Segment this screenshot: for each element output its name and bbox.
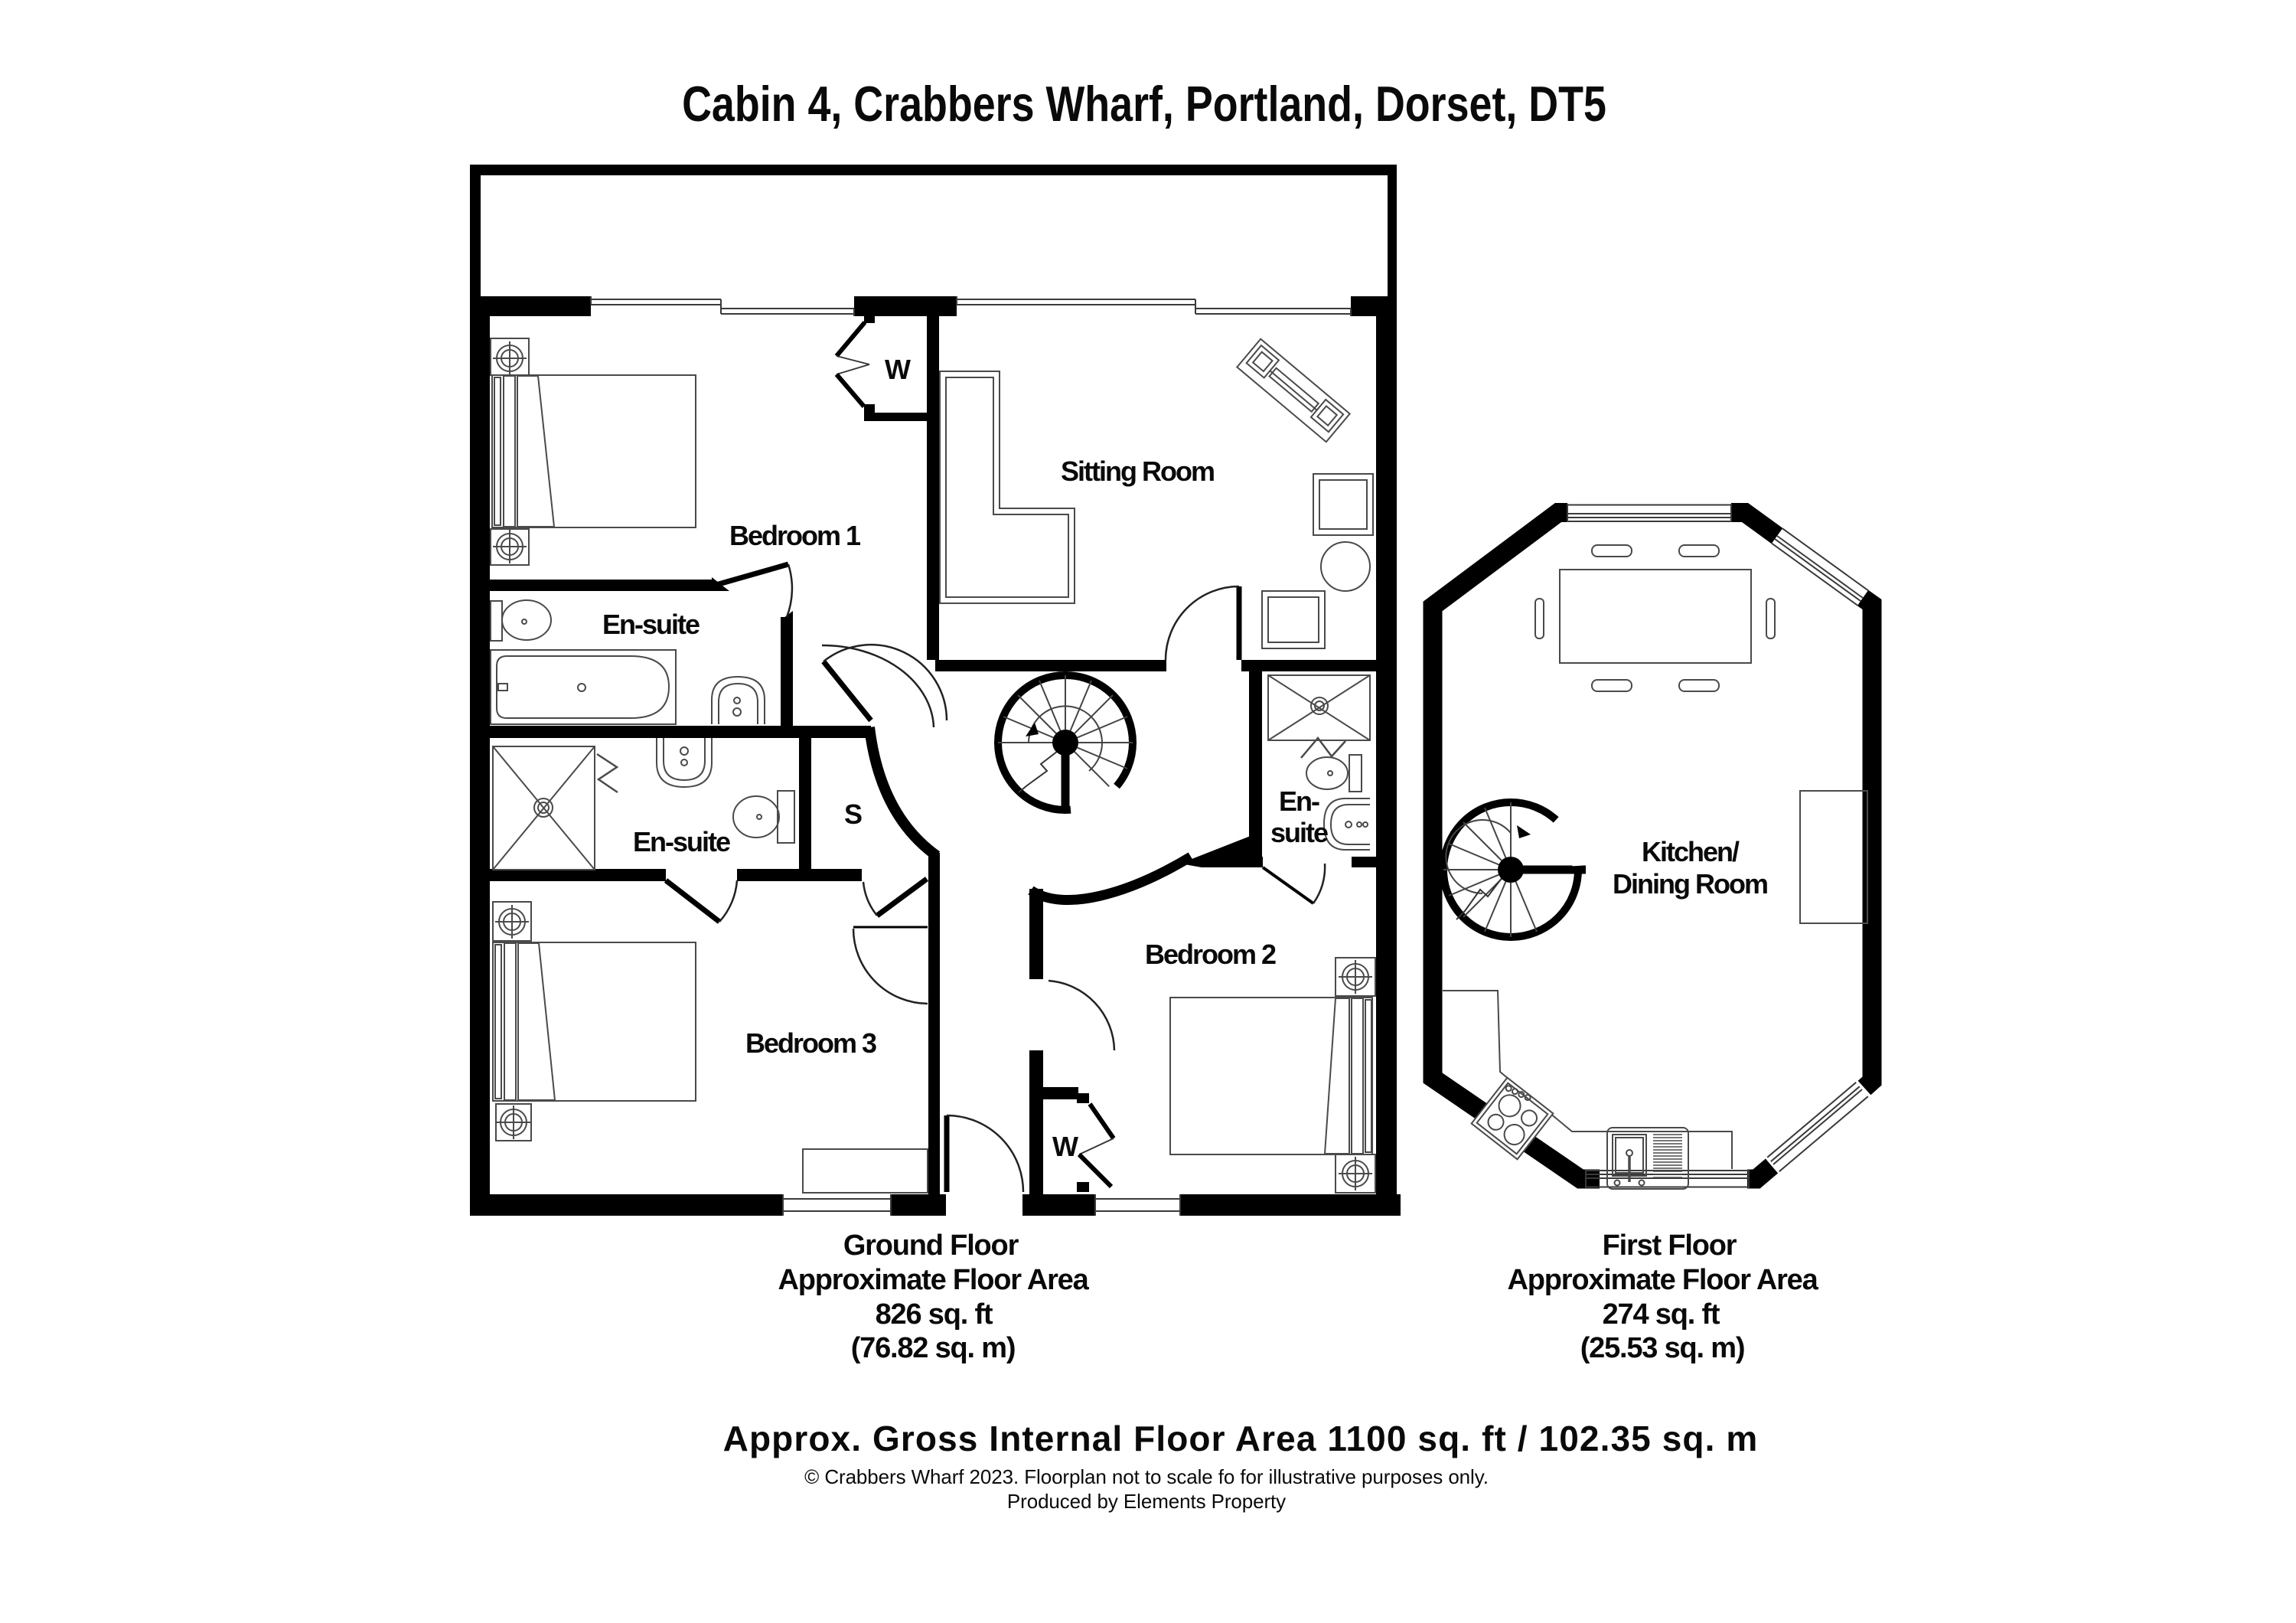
svg-text:Approximate Floor Area: Approximate Floor Area [778, 1264, 1089, 1296]
svg-text:En-: En- [1279, 785, 1319, 817]
svg-text:En-suite: En-suite [602, 609, 700, 640]
svg-text:(76.82 sq. m): (76.82 sq. m) [851, 1332, 1016, 1364]
svg-text:Approx. Gross Internal Floor A: Approx. Gross Internal Floor Area 1100 s… [723, 1419, 1759, 1458]
svg-text:Kitchen/: Kitchen/ [1642, 836, 1740, 867]
svg-text:(25.53 sq. m): (25.53 sq. m) [1580, 1332, 1745, 1364]
svg-text:Produced by Elements Property: Produced by Elements Property [1007, 1490, 1286, 1513]
svg-text:W: W [885, 354, 911, 385]
svg-text:274 sq. ft: 274 sq. ft [1603, 1298, 1720, 1331]
svg-text:Approximate Floor Area: Approximate Floor Area [1507, 1264, 1818, 1296]
svg-text:Ground Floor: Ground Floor [843, 1229, 1019, 1262]
svg-text:© Crabbers Wharf 2023. Floorp: © Crabbers Wharf 2023. Floorplan not to … [804, 1465, 1489, 1488]
svg-text:Bedroom 1: Bedroom 1 [729, 520, 861, 551]
svg-text:W: W [1052, 1131, 1078, 1162]
svg-text:Cabin 4, Crabbers Wharf, Portl: Cabin 4, Crabbers Wharf, Portland, Dorse… [682, 76, 1606, 132]
svg-text:S: S [844, 798, 862, 830]
svg-text:Dining Room: Dining Room [1613, 868, 1767, 900]
svg-text:First Floor: First Floor [1603, 1229, 1737, 1262]
svg-text:Bedroom 3: Bedroom 3 [745, 1027, 876, 1059]
svg-text:Sitting Room: Sitting Room [1061, 456, 1214, 487]
svg-text:826 sq. ft: 826 sq. ft [876, 1298, 993, 1331]
svg-text:suite: suite [1270, 817, 1328, 848]
svg-text:Bedroom 2: Bedroom 2 [1145, 939, 1276, 970]
svg-text:En-suite: En-suite [633, 826, 730, 857]
